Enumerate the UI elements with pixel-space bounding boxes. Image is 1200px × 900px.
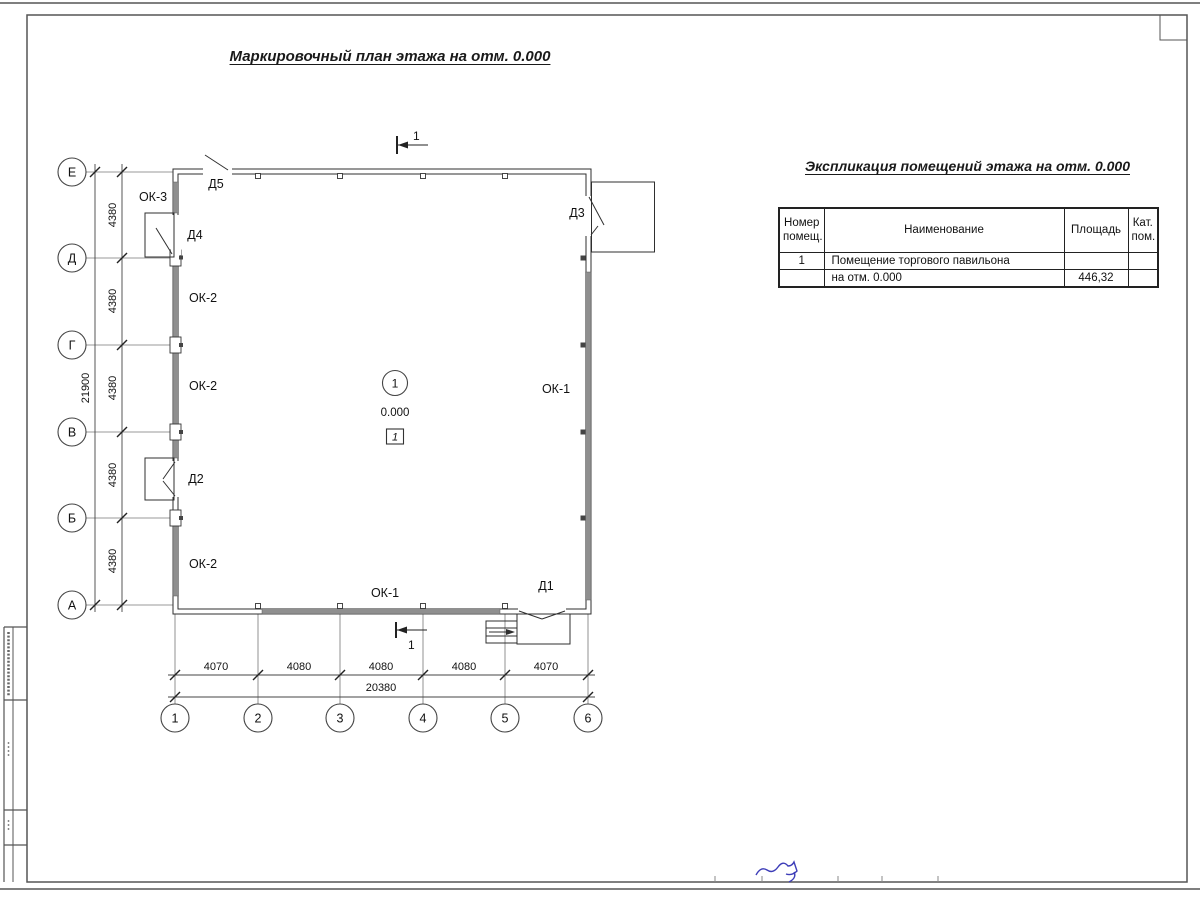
dimensions-bottom: 4070 4080 4080 4080 4070 20380 (168, 661, 595, 702)
label-d5: Д5 (208, 177, 223, 191)
entrance-arrowhead (506, 629, 515, 635)
section-marks: 1 1 (396, 129, 428, 652)
axis-col-1: 1 (172, 712, 179, 726)
plan-labels: ОК-3 ОК-2 ОК-2 ОК-2 ОК-1 ОК-1 Д5 Д4 Д3 Д… (139, 177, 585, 600)
floor-plan: 4380 4380 4380 4380 4380 21900 (58, 129, 655, 732)
dim-left-total: 21900 (80, 373, 92, 404)
door-d3-vestibule (592, 182, 655, 252)
header-category: Кат. пом. (1128, 208, 1158, 253)
label-d4: Д4 (187, 228, 202, 242)
label-ok1-bottom: ОК-1 (371, 586, 399, 600)
axis-row-a: А (68, 599, 77, 613)
label-ok2-bottom: ОК-2 (189, 557, 217, 571)
cell-room-cat (1128, 253, 1158, 270)
dim-bottom-total: 20380 (366, 682, 397, 694)
room-number: 1 (392, 377, 399, 391)
dim-bottom-5: 4070 (534, 661, 558, 673)
axis-markers-bottom: 1 2 3 4 5 6 (161, 704, 602, 732)
window-ok2-mid (173, 352, 179, 425)
room-marker: 1 0.000 1 (381, 371, 410, 445)
dim-bottom-1: 4070 (204, 661, 228, 673)
door-d4-leaf (156, 228, 172, 254)
table-row: на отм. 0.000 446,32 (779, 270, 1158, 288)
axis-row-d: Д (68, 252, 77, 266)
cell-room-area (1064, 253, 1128, 270)
axis-grid (86, 172, 588, 704)
door-gaps (171, 167, 593, 616)
axis-col-3: 3 (337, 712, 344, 726)
dim-left-3: 4380 (107, 376, 119, 400)
axis-col-2: 2 (255, 712, 262, 726)
window-ok1-bottom (262, 609, 500, 615)
wall-marks (170, 174, 586, 609)
explication-table: Номер помещ. Наименование Площадь Кат. п… (778, 207, 1159, 288)
dim-left-1: 4380 (107, 203, 119, 227)
axis-row-b: Б (68, 512, 76, 526)
cell-room-cat (1128, 270, 1158, 288)
window-left-short (173, 438, 179, 458)
label-ok3: ОК-3 (139, 190, 167, 204)
cell-room-name: Помещение торгового павильона (824, 253, 1064, 270)
axis-col-6: 6 (585, 712, 592, 726)
dimensions-left: 4380 4380 4380 4380 4380 21900 (80, 164, 127, 612)
window-ok2-bottom (173, 525, 179, 596)
sheet-canvas: 4380 4380 4380 4380 4380 21900 (0, 0, 1200, 900)
header-room-number: Номер помещ. (779, 208, 824, 253)
cell-room-number (779, 270, 824, 288)
stamp-column (4, 627, 27, 882)
elevation-mark: 0.000 (381, 407, 410, 419)
dim-bottom-2: 4080 (287, 661, 311, 673)
axis-row-v: В (68, 426, 76, 440)
sheet-frame (0, 3, 1200, 889)
window-ok3 (173, 182, 179, 213)
window-ok2-top (173, 262, 179, 341)
section-mark-top: 1 (413, 129, 420, 143)
doors (145, 155, 655, 644)
label-d2: Д2 (188, 472, 203, 486)
label-d3: Д3 (569, 206, 584, 220)
window-ok1-right (586, 272, 592, 600)
walls (173, 169, 591, 614)
cell-room-name: на отм. 0.000 (824, 270, 1064, 288)
label-ok2-mid: ОК-2 (189, 379, 217, 393)
cell-room-number: 1 (779, 253, 824, 270)
floor-type-mark: 1 (392, 432, 398, 444)
label-ok1-right: ОК-1 (542, 382, 570, 396)
header-area: Площадь (1064, 208, 1128, 253)
door-d2-vestibule (145, 458, 174, 500)
axis-col-4: 4 (420, 712, 427, 726)
table-row: 1 Помещение торгового павильона (779, 253, 1158, 270)
dim-left-5: 4380 (107, 549, 119, 573)
section-mark-bottom: 1 (408, 638, 415, 652)
axis-col-5: 5 (502, 712, 509, 726)
dim-bottom-4: 4080 (452, 661, 476, 673)
windows (173, 182, 591, 614)
axis-row-e: Е (68, 166, 76, 180)
label-ok2-top: ОК-2 (189, 291, 217, 305)
plan-title: Маркировочный план этажа на отм. 0.000 (175, 48, 605, 65)
dim-left-4: 4380 (107, 463, 119, 487)
cell-room-area: 446,32 (1064, 270, 1128, 288)
dim-bottom-3: 4080 (369, 661, 393, 673)
explication-title: Экспликация помещений этажа на отм. 0.00… (778, 158, 1157, 174)
dim-left-2: 4380 (107, 289, 119, 313)
label-d1: Д1 (538, 579, 553, 593)
bottom-strip (715, 862, 938, 882)
table-header-row: Номер помещ. Наименование Площадь Кат. п… (779, 208, 1158, 253)
axis-row-g: Г (69, 339, 76, 353)
header-name: Наименование (824, 208, 1064, 253)
